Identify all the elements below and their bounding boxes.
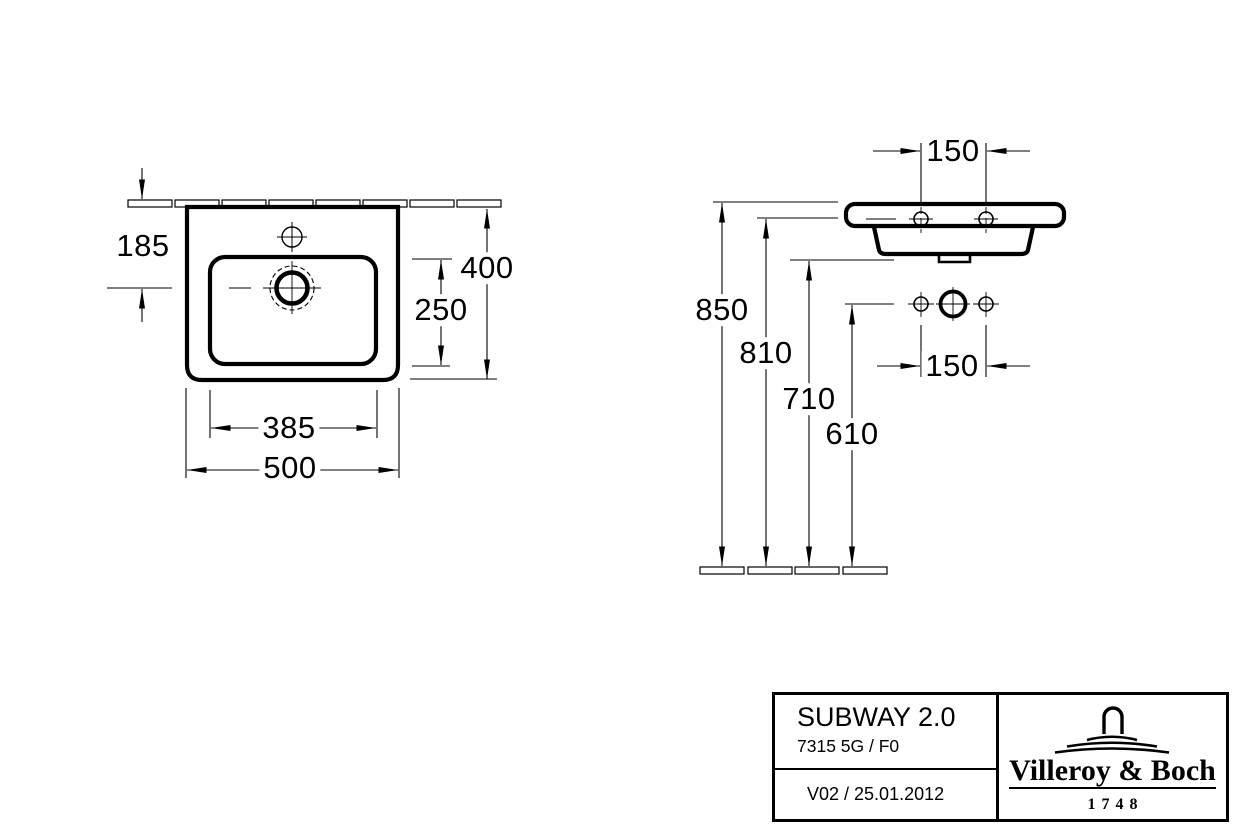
drain-icon	[229, 261, 321, 314]
brand-wordmark: Villeroy & Boch	[1009, 755, 1216, 789]
title-block-brand-cell: Villeroy & Boch 1748	[996, 695, 1226, 819]
title-block-left: SUBWAY 2.0 7315 5G / F0 V02 / 25.01.2012	[775, 695, 996, 819]
technical-drawing-canvas: 185 400 250 385 500 150 150 850 810 710 …	[0, 0, 1250, 833]
product-code: 7315 5G / F0	[797, 736, 996, 756]
dim-label-bowl-depth: 250	[410, 294, 471, 326]
front-drain-stub	[939, 256, 970, 262]
tap-hole-icon	[277, 222, 307, 252]
dim-label-height-710: 710	[778, 383, 839, 415]
dim-label-hole-spacing-top: 150	[922, 135, 983, 167]
front-bowl-outline	[874, 227, 1033, 254]
dim-label-height-rim: 850	[691, 294, 752, 326]
product-series: SUBWAY 2.0	[797, 702, 996, 732]
revision-date: V02 / 25.01.2012	[807, 784, 944, 805]
brand-year: 1748	[999, 796, 1226, 814]
wall-hole-icons	[908, 287, 999, 321]
title-block-product-cell: SUBWAY 2.0 7315 5G / F0	[775, 695, 996, 768]
title-block: SUBWAY 2.0 7315 5G / F0 V02 / 25.01.2012…	[772, 692, 1229, 822]
title-block-revision-cell: V02 / 25.01.2012	[775, 768, 996, 819]
dim-label-hole-spacing-mid: 150	[921, 350, 982, 382]
dim-label-tap-setback: 185	[112, 230, 173, 262]
dim-label-overall-width: 500	[259, 452, 320, 484]
floor-hatch	[700, 567, 887, 574]
dim-label-bowl-width: 385	[258, 412, 319, 444]
front-rim-outline	[846, 204, 1064, 226]
dim-label-depth: 400	[456, 252, 517, 284]
dim-label-height-810: 810	[735, 337, 796, 369]
deck-hole-icons	[909, 207, 998, 233]
dim-label-height-610: 610	[821, 418, 882, 450]
